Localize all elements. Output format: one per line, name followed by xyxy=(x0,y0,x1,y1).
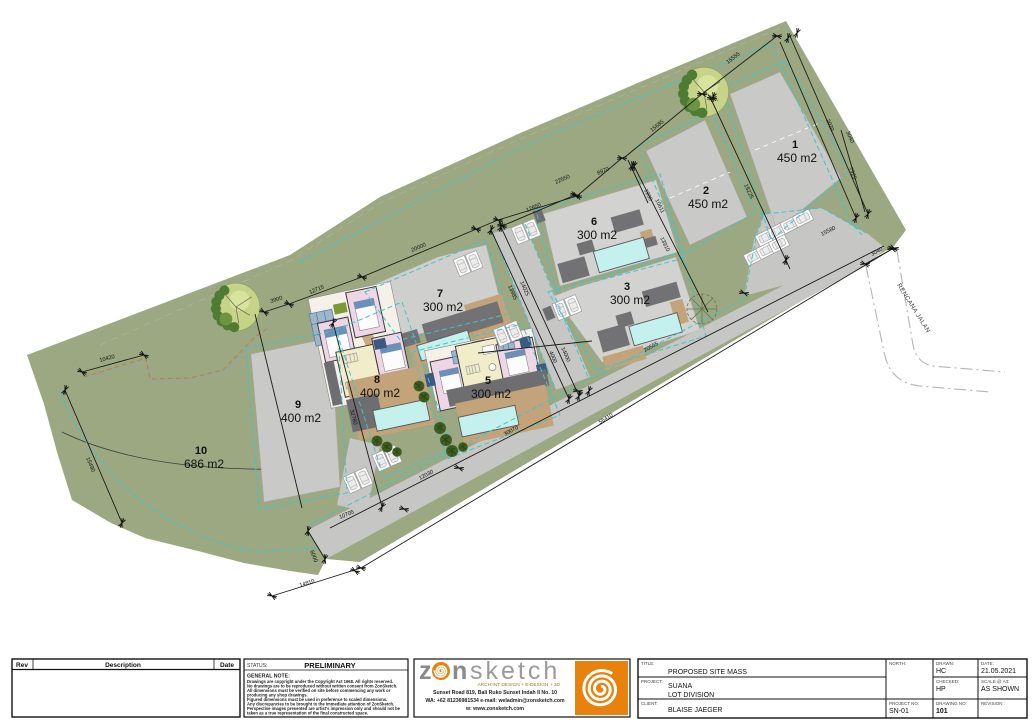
svg-text:NORTH:: NORTH: xyxy=(889,661,906,666)
svg-text:SCALE @ A3:: SCALE @ A3: xyxy=(981,679,1009,684)
svg-text:HP: HP xyxy=(936,686,946,693)
svg-text:DATE:: DATE: xyxy=(981,661,994,666)
svg-text:STATUS:: STATUS: xyxy=(247,663,267,669)
svg-text:n: n xyxy=(452,657,468,685)
svg-text:5: 5 xyxy=(485,375,491,387)
svg-text:300 m2: 300 m2 xyxy=(423,300,463,314)
svg-text:2: 2 xyxy=(703,185,709,197)
svg-text:PRELIMINARY: PRELIMINARY xyxy=(304,661,355,670)
svg-text:Description: Description xyxy=(105,662,141,669)
svg-text:DRAWING NO:: DRAWING NO: xyxy=(936,701,967,706)
svg-text:3: 3 xyxy=(624,281,630,293)
svg-text:Rev: Rev xyxy=(16,662,28,669)
svg-text:101: 101 xyxy=(936,708,948,715)
svg-text:LOT DIVISION: LOT DIVISION xyxy=(668,692,714,699)
svg-text:9: 9 xyxy=(295,399,301,411)
svg-text:z: z xyxy=(419,657,433,685)
svg-text:7: 7 xyxy=(437,288,443,300)
svg-text:400 m2: 400 m2 xyxy=(360,386,400,400)
svg-text:BLAISE JAEGER: BLAISE JAEGER xyxy=(668,707,722,714)
svg-text:8: 8 xyxy=(374,374,380,386)
svg-text:Date: Date xyxy=(220,662,234,669)
svg-text:PROPOSED SITE MASS: PROPOSED SITE MASS xyxy=(668,669,747,676)
svg-text:21.05.2021: 21.05.2021 xyxy=(981,668,1016,675)
svg-text:SN-01: SN-01 xyxy=(889,708,909,715)
svg-text:WA: +62 81236981534 e-mail: we: WA: +62 81236981534 e-mail: weladmin@zon… xyxy=(425,698,565,704)
svg-text:300 m2: 300 m2 xyxy=(577,228,617,242)
svg-text:300 m2: 300 m2 xyxy=(610,293,650,307)
svg-text:CHECKED:: CHECKED: xyxy=(936,679,959,684)
svg-text:ARCH:INT DESIGN + E-DESIGN + 3: ARCH:INT DESIGN + E-DESIGN + 3D xyxy=(477,682,560,688)
svg-text:14810: 14810 xyxy=(299,579,316,589)
svg-text:PROJECT:: PROJECT: xyxy=(641,679,663,684)
svg-text:REVISION :: REVISION : xyxy=(981,701,1005,706)
svg-text:HC: HC xyxy=(936,668,946,675)
svg-text:AS SHOWN: AS SHOWN xyxy=(981,686,1019,693)
svg-text:RENCANA JALAN: RENCANA JALAN xyxy=(895,282,931,334)
svg-text:6: 6 xyxy=(591,216,597,228)
svg-text:Sunset Road 819, Bali Ruko Sun: Sunset Road 819, Bali Ruko Sunset Indah … xyxy=(433,690,557,696)
svg-text:300 m2: 300 m2 xyxy=(471,387,511,401)
svg-text:686 m2: 686 m2 xyxy=(184,457,224,471)
svg-text:450 m2: 450 m2 xyxy=(777,151,817,165)
svg-text:450 m2: 450 m2 xyxy=(688,197,728,211)
svg-text:sketch: sketch xyxy=(470,657,560,685)
svg-text:1: 1 xyxy=(792,139,798,151)
svg-text:w: www.zonsketch.com: w: www.zonsketch.com xyxy=(465,706,524,712)
svg-text:CLIENT:: CLIENT: xyxy=(641,701,658,706)
svg-text:10: 10 xyxy=(195,445,207,457)
svg-text:TITLE:: TITLE: xyxy=(641,661,655,666)
svg-text:DRAWN:: DRAWN: xyxy=(936,661,954,666)
svg-text:PROJECT NO:: PROJECT NO: xyxy=(889,701,919,706)
svg-text:SUANA: SUANA xyxy=(668,683,692,690)
svg-text:400 m2: 400 m2 xyxy=(281,411,321,425)
svg-text:taken as a true representation: taken as a true representation of the fi… xyxy=(247,711,368,716)
